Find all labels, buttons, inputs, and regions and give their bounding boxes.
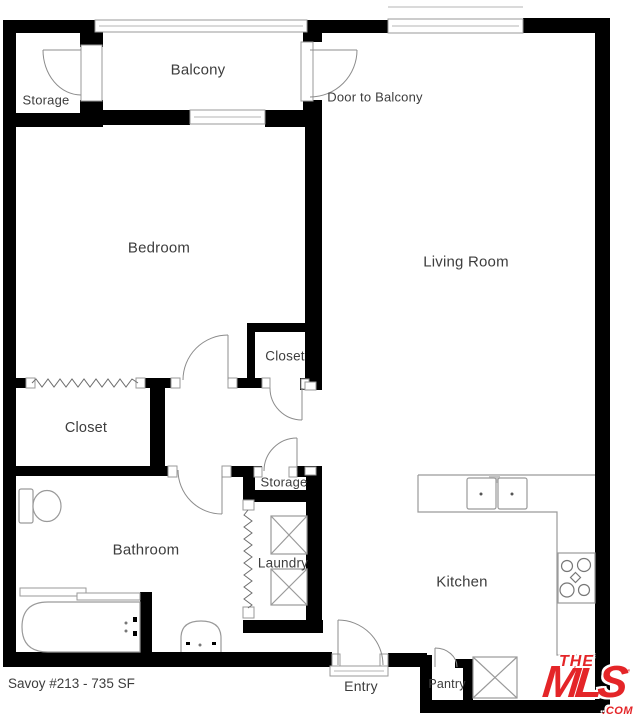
toilet-icon [19,489,61,523]
room-label-balcony: Balcony [171,62,226,79]
floor-plan: Balcony Storage Door to Balcony Bedroom … [0,0,634,720]
room-label-kitchen: Kitchen [436,574,487,591]
label-door-to-balcony: Door to Balcony [327,90,423,105]
walkin-closet-bifold-zigzag [32,379,138,387]
dryer-icon [271,569,307,605]
room-label-laundry: Laundry [258,556,308,571]
pantry-door-swing [435,648,457,667]
balcony-storage-door-swing [43,50,81,95]
accordion-doors [32,379,252,608]
themls-logo: MLS THE ™ .COM [542,652,634,720]
entry-door-swing [338,620,383,665]
room-label-bathroom: Bathroom [113,542,180,559]
pedestal-sink-icon [181,621,221,652]
room-label-pantry: Pantry [428,677,465,691]
laundry-accordion-zigzag [244,510,252,608]
room-label-closet-walkin: Closet [65,420,107,436]
kitchen-sink-icon [467,475,527,509]
logo-trademark-symbol: ™ [623,669,630,676]
logo-the-text: THE [559,653,594,671]
logo-com-text: .COM [602,705,633,717]
bedroom-closet-door-swing [270,388,302,420]
refrigerator-icon [473,657,517,698]
room-label-closet-bedroom: Closet [265,349,304,364]
room-label-storage-balcony: Storage [23,93,70,108]
floor-plan-drawing [0,0,634,720]
room-label-entry: Entry [344,678,378,694]
stove-icon [558,553,595,603]
plan-footer-caption: Savoy #213 - 735 SF [8,676,135,691]
room-label-bedroom: Bedroom [128,240,190,257]
bedroom-door-swing [183,335,228,380]
bathroom-door-swing [178,470,222,514]
room-label-living-room: Living Room [423,254,509,271]
room-label-storage-hall: Storage [261,475,308,490]
bathtub-icon [22,602,140,652]
washer-icon [271,516,307,554]
hall-storage-door-swing [264,438,297,471]
